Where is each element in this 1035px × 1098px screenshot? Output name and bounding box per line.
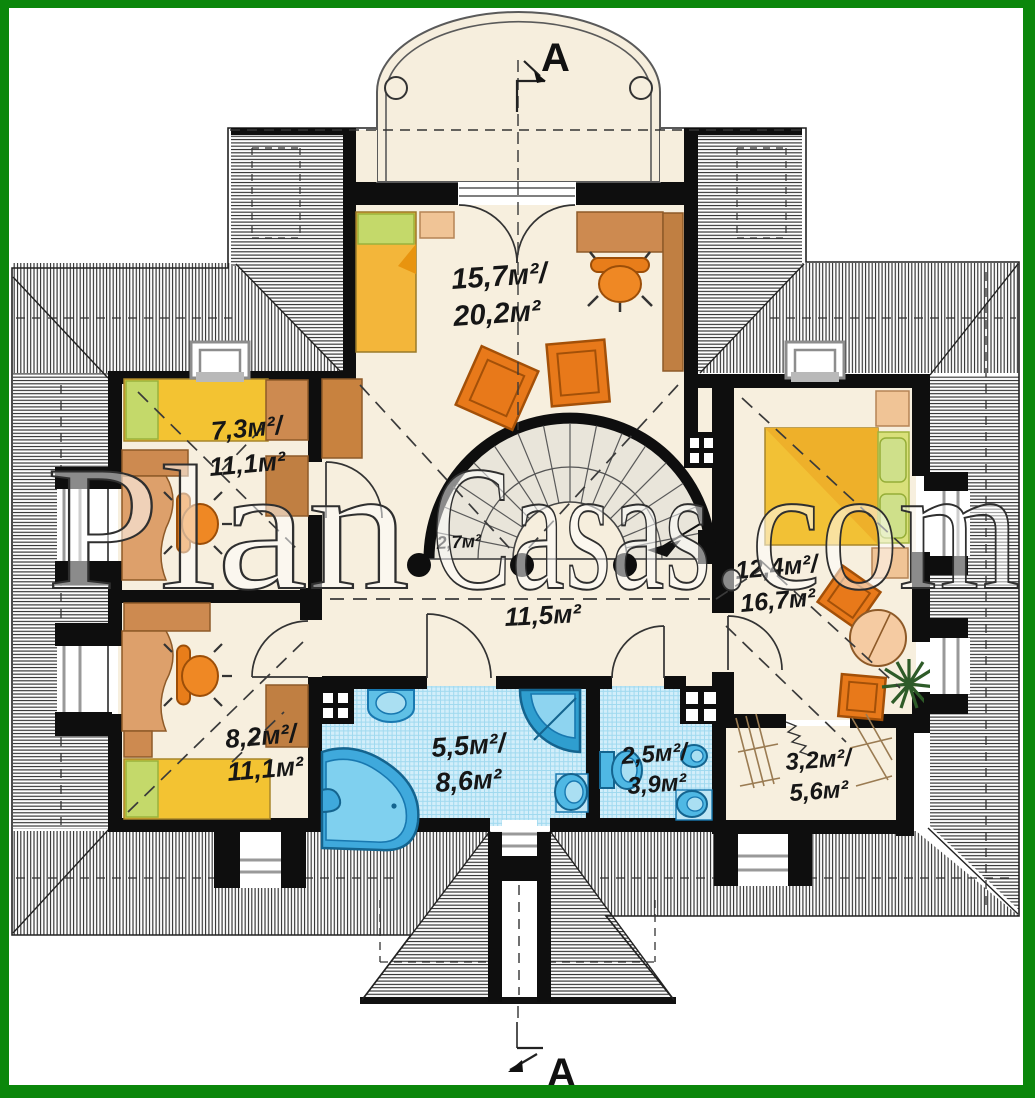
svg-text:5,5м²/: 5,5м²/ [430, 728, 508, 763]
svg-text:.com: .com [712, 429, 1020, 627]
svg-text:20,2м²: 20,2м² [451, 295, 543, 333]
svg-text:8,6м²: 8,6м² [434, 763, 503, 798]
svg-text:Plan: Plan [46, 429, 410, 627]
svg-text:A: A [541, 36, 570, 80]
svg-text:2,5м²/: 2,5м²/ [620, 738, 691, 770]
svg-text:Casas: Casas [432, 429, 711, 627]
svg-text:8,2м²/: 8,2м²/ [224, 718, 300, 754]
svg-text:5,6м²: 5,6м² [789, 776, 851, 807]
svg-text:3,9м²: 3,9м² [627, 769, 689, 800]
svg-text:3,2м²/: 3,2м²/ [785, 744, 855, 776]
